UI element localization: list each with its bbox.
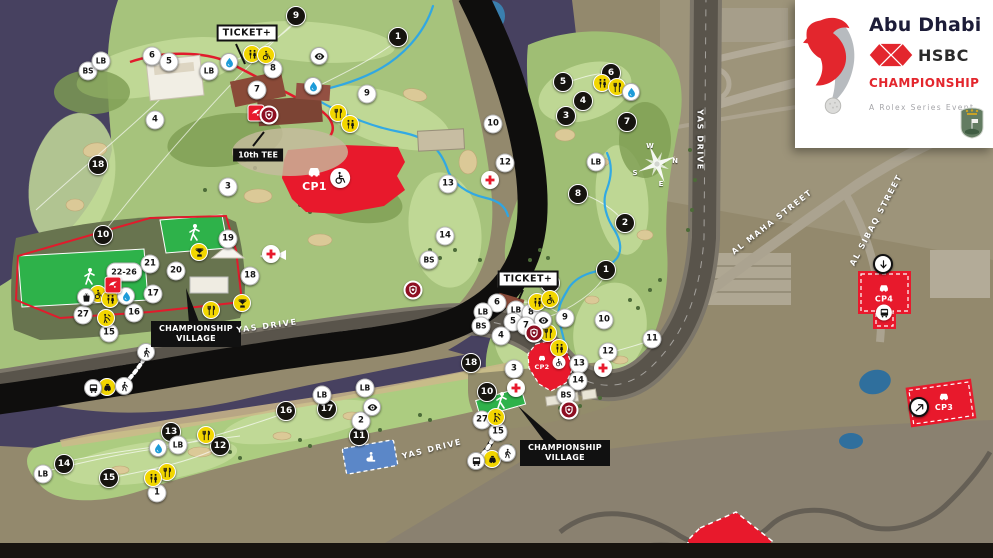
parking-id: CP2 [535,363,550,371]
event-map: 191810111213141516172345678911810BSLB65L… [0,0,993,558]
bus-icon [467,452,485,470]
eye-icon [363,398,381,416]
road-label: YAS DRIVE [236,317,298,334]
venue-marker-BS: BS [420,251,439,270]
hole-marker-16: 16 [276,401,296,421]
venue-marker-17: 17 [144,285,163,304]
venue-marker-LB: LB [92,52,111,71]
water-icon [149,439,167,457]
rolex-series-badge-icon [959,107,985,139]
compass-letter-W: W [646,142,654,150]
venue-marker-5: 5 [160,53,179,72]
hole-marker-4: 4 [573,91,593,111]
venue-marker-BS: BS [472,317,491,336]
walk-icon [115,377,133,395]
wheelchair-icon [257,46,275,64]
ticket-label: TICKET+ [217,25,278,42]
wheelchair-icon [541,290,559,308]
road-label: YAS DRIVE [696,109,705,171]
cross-icon [481,171,499,189]
restroom-icon [144,469,162,487]
logo-city: Abu Dhabi [869,14,987,36]
hole-marker-10: 10 [477,382,497,402]
venue-marker-LB: LB [169,436,188,455]
venue-marker-3: 3 [505,360,524,379]
road-label: YAS DRIVE [401,437,463,461]
bus-icon [876,305,892,321]
hole-marker-9: 9 [286,6,306,26]
car-icon [306,163,322,179]
hole-marker-7: 7 [617,112,637,132]
venue-marker-14: 14 [436,227,455,246]
parking-id: CP4 [875,295,893,304]
hole-marker-3: 3 [556,106,576,126]
venue-marker-27: 27 [74,306,93,325]
car-icon [938,390,950,402]
venue-marker-LB: LB [587,153,606,172]
cross-icon [262,245,280,263]
venue-marker-21: 21 [141,255,160,274]
bus-icon [84,379,102,397]
venue-marker-LB: LB [34,465,53,484]
compass-letter-E: E [659,180,664,188]
trophy-icon [233,294,251,312]
restroom-icon [341,115,359,133]
venue-marker-13: 13 [439,175,458,194]
venue-marker-16: 16 [125,304,144,323]
hole-marker-14: 14 [54,454,74,474]
venue-marker-LB: LB [356,379,375,398]
road-label: AL SIBAQ STREET [848,173,904,268]
parking-id: CP1 [302,180,327,193]
venue-marker-LB: LB [313,386,332,405]
logo-bank: HSBC [918,46,969,65]
water-icon [622,83,640,101]
hole-marker-18: 18 [88,155,108,175]
compass-letter-N: N [672,157,678,165]
shield-icon [560,401,579,420]
hole-marker-18: 18 [461,353,481,373]
parking-CP3: CP3 [935,390,953,412]
venue-marker-4: 4 [146,111,165,130]
venue-marker-20: 20 [167,262,186,281]
venue-marker-7: 7 [248,81,267,100]
ticket-label: TICKET+ [498,271,559,288]
falcon-logo-icon [803,12,863,122]
shield-icon [404,281,423,300]
village-label: CHAMPIONSHIP VILLAGE [520,440,610,466]
hole-marker-1: 1 [388,27,408,47]
venue-marker-10: 10 [595,311,614,330]
venue-marker-3: 3 [219,178,238,197]
venue-marker-18: 18 [241,267,260,286]
food-icon [197,426,215,444]
wheelchair-icon [552,356,565,369]
parking-CP1: CP1 [302,163,350,193]
bottom-bar [0,543,993,558]
venue-marker-9: 9 [556,309,575,328]
shield-icon [260,106,279,125]
food-icon [202,301,220,319]
autograph-icon [97,309,115,327]
parking-CP4: CP4 [875,282,893,321]
hole-marker-8: 8 [568,184,588,204]
hole-marker-2: 2 [615,213,635,233]
eye-icon [310,47,328,65]
car-icon [878,282,890,294]
bag-icon [77,288,95,306]
hsbc-hexagon-icon [869,43,913,67]
venue-marker-12: 12 [496,154,515,173]
logo-event: CHAMPIONSHIP [869,76,987,90]
hole-marker-5: 5 [553,72,573,92]
venue-marker-LB: LB [200,62,219,81]
compass-letter-S: S [632,169,637,177]
parking-id: CP3 [935,403,953,412]
water-icon [304,77,322,95]
hole-marker-15: 15 [99,468,119,488]
cross-icon [507,379,525,397]
shield-icon [525,324,544,343]
trophy-icon [190,243,208,261]
car-icon [538,353,547,362]
road-label: AL MAHA STREET [730,188,814,257]
tee-label: 10th TEE [233,149,283,162]
hole-marker-1: 1 [596,260,616,280]
prayer-icon [363,450,378,465]
water-icon [220,53,238,71]
village-label: CHAMPIONSHIP VILLAGE [151,321,241,347]
venue-marker-10: 10 [484,115,503,134]
walk-icon [498,444,516,462]
venue-marker-9: 9 [358,85,377,104]
event-logo: Abu Dhabi HSBC CHAMPIONSHIP A Rolex Seri… [795,0,993,148]
venue-marker-11: 11 [643,330,662,349]
hole-marker-10: 10 [93,225,113,245]
arrow-down-icon [873,254,893,274]
venue-marker-19: 19 [219,230,238,249]
arrow-ne-icon [909,397,929,417]
venue-marker-4: 4 [492,327,511,346]
autograph-icon [487,408,505,426]
parking-CP2: CP2 [535,353,566,371]
wheelchair-icon [330,168,350,188]
cross-icon [594,359,612,377]
falcon-icon [105,277,122,294]
